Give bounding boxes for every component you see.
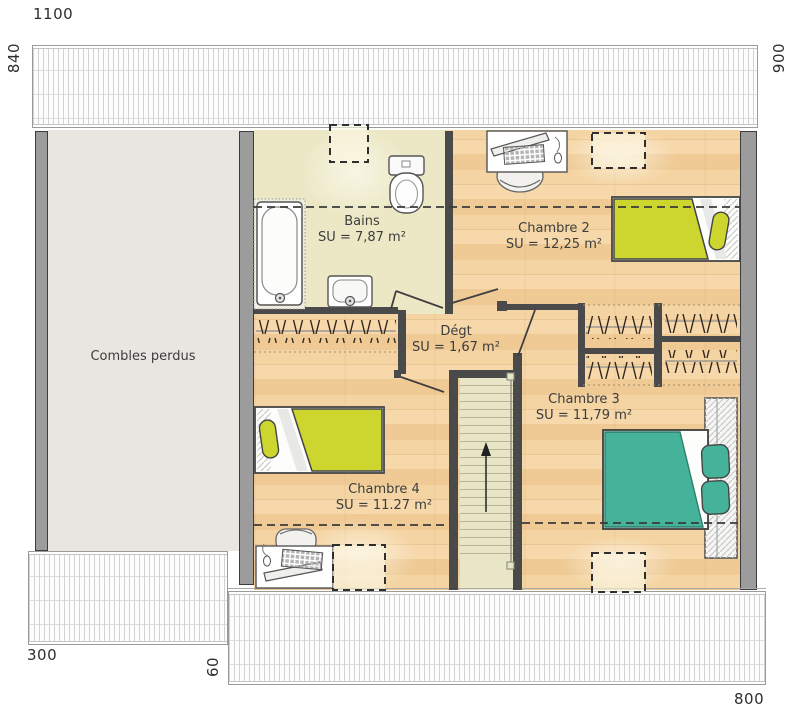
sink-icon [328, 276, 372, 307]
door-bains [391, 291, 443, 309]
dim-left: 840 [5, 43, 23, 73]
door-chambre3 [518, 310, 535, 356]
room-area: SU = 11.27 m² [336, 498, 432, 514]
room-area: SU = 7,87 m² [318, 230, 406, 246]
room-name: Bains [318, 214, 406, 230]
dim-bottom-right: 800 [734, 690, 764, 708]
dim-right: 900 [770, 43, 788, 73]
roof-window-icon [592, 553, 645, 592]
room-name: Chambre 3 [536, 392, 632, 408]
desk-icon [256, 529, 333, 588]
room-area: SU = 12,25 m² [506, 237, 602, 253]
roof-window-icon [330, 125, 368, 162]
door-chambre4 [401, 377, 444, 392]
combles-label: Combles perdus [90, 349, 195, 365]
single-bed-icon [255, 407, 384, 473]
bathtub-icon [254, 199, 305, 309]
desk-icon [487, 131, 567, 192]
bains-label: Bains SU = 7,87 m² [318, 214, 406, 246]
dim-bottom-left: 300 [27, 646, 57, 664]
closet-rail-icon [586, 356, 652, 379]
room-name: Chambre 2 [506, 221, 602, 237]
dressing-rail-chambre4-icon [256, 320, 396, 343]
room-area: SU = 11,79 m² [536, 408, 632, 424]
degagement-label: Dégt SU = 1,67 m² [412, 324, 500, 356]
roof-window-icon [592, 133, 645, 168]
stairs-up-arrow-icon [481, 442, 491, 512]
closet-rail-icon [586, 316, 652, 339]
chambre4-label: Chambre 4 SU = 11.27 m² [336, 482, 432, 514]
roof-window-icon [333, 545, 385, 590]
dim-top: 1100 [33, 5, 73, 23]
room-area: SU = 1,67 m² [412, 340, 500, 356]
door-chambre2 [452, 289, 498, 303]
floor-plan: 1100 840 900 300 60 800 [0, 0, 800, 720]
room-name: Combles perdus [90, 349, 195, 365]
room-name: Chambre 4 [336, 482, 432, 498]
chambre2-label: Chambre 2 SU = 12,25 m² [506, 221, 602, 253]
closet-rail-icon [665, 350, 737, 373]
chambre3-label: Chambre 3 SU = 11,79 m² [536, 392, 632, 424]
toilet-icon [389, 156, 424, 213]
closet-rail-icon [665, 310, 737, 333]
room-name: Dégt [412, 324, 500, 340]
stairs-handrail [507, 373, 514, 569]
dim-bottom-offset: 60 [204, 657, 222, 677]
